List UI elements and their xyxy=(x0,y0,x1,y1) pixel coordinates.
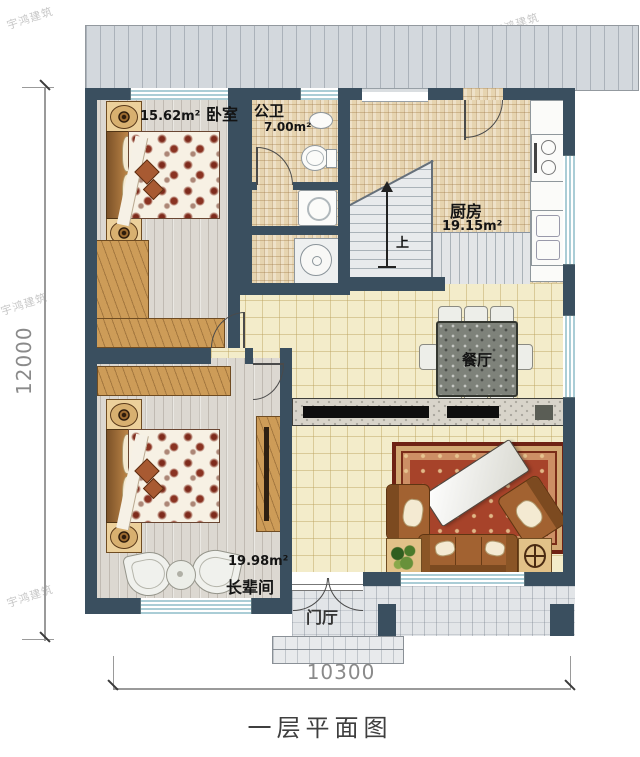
bedroom-area-label: 15.62m² xyxy=(140,109,200,124)
wall xyxy=(240,283,348,295)
wall xyxy=(293,182,338,190)
wall xyxy=(252,598,292,614)
bathroom-area-label: 7.00m² xyxy=(264,120,311,134)
high-window xyxy=(362,88,428,102)
dim-line-horizontal xyxy=(113,688,570,690)
tv-cabinet-slot xyxy=(264,427,269,521)
watermark: 宇鸿建筑 xyxy=(0,289,49,319)
wall xyxy=(563,265,575,315)
window xyxy=(400,572,525,586)
wall xyxy=(338,88,350,295)
dim-height-label: 12000 xyxy=(12,335,32,395)
wall xyxy=(428,88,463,100)
stair-edge-line xyxy=(431,160,433,283)
dining-room-label: 餐厅 xyxy=(462,349,492,370)
bedroom-label: 15.62m² 卧室 xyxy=(130,101,248,125)
table-ornament xyxy=(524,544,546,568)
stair-arrow-head xyxy=(381,181,393,192)
toilet-bowl xyxy=(306,150,324,166)
wall xyxy=(240,226,338,235)
bathroom-door-leaf xyxy=(256,147,258,185)
bedroom-name-label: 卧室 xyxy=(206,105,238,124)
wall xyxy=(85,598,140,614)
elder-area-label: 19.98m² xyxy=(228,554,288,569)
toilet-icon xyxy=(301,145,329,171)
elder-room-door-leaf xyxy=(253,363,284,365)
wall xyxy=(563,398,575,586)
tv-wall-cabinet xyxy=(292,398,565,426)
rear-terrace xyxy=(85,25,639,91)
wall xyxy=(245,348,253,364)
basin-icon xyxy=(309,112,333,129)
armchair-back xyxy=(387,485,399,539)
burner xyxy=(541,160,556,175)
plant-leaves xyxy=(388,540,420,574)
tv-icon xyxy=(303,406,429,418)
plan-title: 一层平面图 xyxy=(220,708,420,743)
wall xyxy=(338,277,445,291)
cabinet-block xyxy=(535,405,553,420)
bedroom-door-leaf xyxy=(243,312,245,348)
side-table-icon xyxy=(518,538,552,574)
wall xyxy=(363,572,400,586)
kitchen-door-opening xyxy=(463,88,503,100)
washing-machine-icon xyxy=(298,190,337,226)
sink-basin xyxy=(536,215,560,237)
stairs-up-label: 上 xyxy=(396,232,409,251)
sink-icon xyxy=(531,210,564,266)
stove-controls xyxy=(534,143,537,173)
shower-area xyxy=(294,238,340,284)
dining-table: 餐厅 xyxy=(436,321,518,397)
dim-width-label: 10300 xyxy=(296,660,386,684)
wardrobe xyxy=(97,366,231,396)
stair-landing xyxy=(432,232,530,284)
window xyxy=(300,88,343,100)
kitchen-area-label: 19.15m² xyxy=(442,219,502,234)
window xyxy=(130,88,230,100)
pillow-icon xyxy=(434,539,456,557)
wall xyxy=(240,182,257,190)
armchair-icon xyxy=(386,484,430,540)
nightstand-icon xyxy=(106,399,142,431)
foyer-name-label: 门厅 xyxy=(306,604,338,628)
wardrobe xyxy=(95,318,225,348)
side-table-icon xyxy=(166,560,196,590)
elder-name-label: 长辈间 xyxy=(226,574,274,598)
stove-icon xyxy=(531,134,564,182)
washer-drum xyxy=(307,197,331,221)
burner xyxy=(541,140,556,155)
porch-column xyxy=(550,604,574,636)
cushion-seam xyxy=(481,537,482,565)
wardrobe xyxy=(95,240,149,322)
sink-basin xyxy=(536,240,560,260)
porch-column xyxy=(378,604,396,636)
toilet-tank xyxy=(326,149,337,168)
wall xyxy=(85,348,211,364)
tv-cabinet xyxy=(256,416,282,532)
kitchen-door-leaf xyxy=(464,100,466,140)
shower-drain xyxy=(312,256,322,266)
table-center-dot xyxy=(177,571,183,577)
pillow-icon xyxy=(484,539,506,557)
wall xyxy=(525,572,575,586)
window xyxy=(563,315,575,398)
cushion-seam xyxy=(455,537,456,565)
stair-arrow-tail xyxy=(378,266,396,268)
floor-plan-image: 宇鸿建筑 宇鸿建筑 宇鸿建筑 宇鸿建筑 宇鸿建筑 宇鸿建筑 上 xyxy=(0,0,640,757)
bathroom-name-label: 公卫 xyxy=(254,100,284,121)
wall xyxy=(563,88,575,155)
dim-line-vertical xyxy=(44,88,46,641)
pillow-icon xyxy=(401,498,425,529)
window xyxy=(140,598,252,614)
plant-icon xyxy=(386,538,422,576)
watermark: 宇鸿建筑 xyxy=(5,581,56,611)
window xyxy=(563,155,575,265)
watermark: 宇鸿建筑 xyxy=(5,3,56,33)
tv-soundbar xyxy=(447,406,499,418)
stair-direction-arrow xyxy=(386,192,388,268)
